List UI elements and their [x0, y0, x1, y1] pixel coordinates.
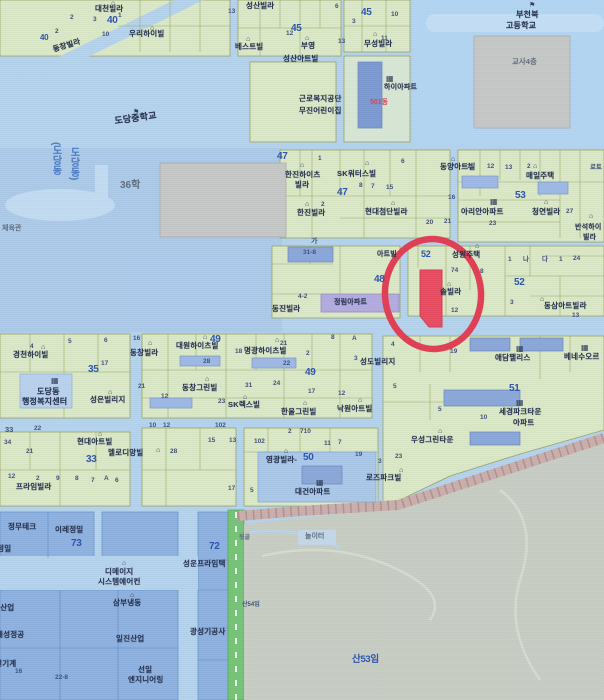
map-label: 우성그린타운: [411, 436, 454, 444]
map-label: 6: [115, 478, 119, 485]
building-icon: ⌂: [284, 448, 288, 455]
map-label: 10: [149, 423, 156, 430]
map-label: 2: [306, 351, 310, 358]
map-label: 성은빌리지: [90, 396, 126, 404]
building-icon: ⌂: [243, 394, 247, 401]
building-icon: ⌂: [122, 560, 126, 567]
map-label: 52: [421, 250, 430, 259]
map-label: 2: [527, 164, 531, 171]
map-label: 2: [36, 476, 40, 483]
map-label: 로토: [590, 165, 602, 172]
map-label: 삼부냉동: [113, 599, 141, 607]
map-label: 경천하이빌: [13, 351, 49, 359]
map-label: 23: [489, 221, 496, 228]
map-label: 영광빌라-: [266, 456, 297, 464]
map-label: 고등학교: [506, 22, 536, 30]
map-label: 현대첨단빌라: [365, 208, 408, 216]
map-label: 정림아파트: [334, 299, 367, 306]
apartment-icon: ▦: [316, 479, 324, 487]
map-label: 프라임빌라: [16, 483, 52, 491]
map-label: 베스트빌: [235, 43, 263, 51]
map-label: 22: [283, 361, 290, 368]
building-icon: ⌂: [300, 162, 304, 169]
map-label: 2: [288, 429, 292, 436]
map-label: 710: [300, 429, 311, 436]
map-label: 근로복지공단: [299, 95, 342, 103]
map-label: 부천북: [516, 11, 539, 19]
map-label: 교사4층: [512, 58, 537, 66]
map-label: 12: [338, 391, 345, 398]
building-icon: ⌂: [205, 376, 209, 383]
map-label: 13: [228, 9, 235, 16]
map-label: 5: [438, 407, 442, 414]
map-label: 빌라: [295, 181, 309, 189]
map-label: 5: [68, 339, 72, 346]
building-icon: ⌂: [358, 397, 362, 404]
school-icon: ⚑: [133, 109, 139, 116]
map-label: 13: [229, 438, 236, 445]
map-label: 21: [444, 219, 451, 226]
map-label: 8: [331, 335, 335, 342]
map-label: 도당동): [68, 147, 78, 180]
map-label: 40: [40, 34, 48, 42]
map-label: 2: [55, 29, 59, 36]
map-label: 반석하이: [575, 224, 602, 231]
map-label: 7: [371, 184, 375, 191]
building-icon: ⌂: [540, 296, 544, 303]
map-label: 체육관: [2, 225, 21, 232]
building-icon: ⌂: [589, 213, 593, 220]
map-label: 1: [559, 257, 563, 264]
map-label: 현대아트빌: [77, 438, 113, 446]
map-label: 한진빌라: [297, 209, 325, 217]
map-label: 21: [138, 384, 145, 391]
map-label: (도당동: [50, 142, 60, 175]
map-label: 33: [86, 455, 97, 465]
map-label: 동창빌라: [130, 349, 158, 357]
map-label: 한진하이츠: [285, 171, 321, 179]
building-icon: ⌂: [156, 447, 160, 454]
map-label: 성운프라임텍: [183, 560, 226, 568]
apartment-icon: ▦: [386, 75, 394, 83]
map-label: 28: [170, 449, 177, 456]
map-label: 16: [448, 195, 455, 202]
map-label: 13: [505, 165, 512, 172]
building-icon: ⌂: [399, 467, 403, 474]
map-label: 4-2: [298, 294, 307, 301]
map-label: A: [352, 336, 357, 343]
map-label: 52: [514, 278, 525, 288]
map-label: 19: [355, 452, 362, 459]
building-icon: ⌂: [373, 31, 377, 38]
map-label: SK렉스빌: [228, 401, 260, 409]
map-label: 24: [273, 381, 280, 388]
building-icon: ⌂: [98, 431, 102, 438]
map-label: 매일주택: [526, 172, 554, 180]
map-label: 19: [450, 349, 457, 356]
map-label: 하이아파트: [384, 84, 417, 91]
map-label: 빌라: [583, 234, 596, 241]
building-icon: ⌂: [303, 400, 307, 407]
map-label: 501동: [370, 99, 388, 106]
map-label: 다: [542, 257, 548, 264]
map-label: 11: [467, 164, 474, 171]
map-label: 광성기공사: [190, 628, 226, 636]
map-label: 3: [354, 356, 358, 363]
map-label: 성산빌라: [246, 2, 274, 10]
map-label: 나: [523, 257, 529, 264]
map-label: 23: [395, 454, 402, 461]
map-label: 시스템에어컨: [98, 578, 141, 586]
map-label: 4: [391, 342, 395, 349]
building-icon: ⌂: [108, 389, 112, 396]
map-label: 무성빌라: [364, 40, 392, 48]
map-label: 17: [308, 389, 315, 396]
map-label: 3: [352, 19, 356, 26]
map-label: 정무테크: [8, 523, 36, 531]
map-label: 24: [573, 256, 580, 263]
map-label: 동진빌라: [272, 305, 300, 313]
map-label: 디메이지: [105, 568, 133, 576]
map-label: 8: [75, 476, 79, 483]
building-icon: ⌂: [544, 199, 548, 206]
map-label: 4: [30, 344, 34, 351]
map-label: 3: [510, 300, 514, 307]
building-icon: ⌂: [305, 201, 309, 208]
map-label: 가: [311, 238, 317, 245]
map-label: 102: [215, 423, 226, 430]
map-label: 동창그린빌: [182, 384, 218, 392]
map-label: A: [104, 476, 109, 483]
map-label: 아리안아파트: [461, 208, 504, 216]
map-label: 이레정밀: [55, 526, 83, 534]
map-label: 성도빌리지: [360, 358, 396, 366]
map-label: 애담팰리스: [495, 354, 531, 362]
map-label: 낙원아트빌: [337, 405, 373, 413]
apartment-icon: ▦: [581, 344, 589, 352]
map-label: 7: [338, 440, 342, 447]
map-label: 베네수오르: [564, 353, 600, 361]
map-label: 27: [566, 209, 573, 216]
map-label: 22-8: [55, 675, 68, 682]
map-label: 31-8: [303, 250, 316, 257]
map-label: SK워터스빌: [337, 170, 376, 178]
map-label: 2: [70, 15, 74, 22]
map-label: 17: [228, 486, 235, 493]
map-label: 세경파크타운: [499, 408, 542, 416]
map-label: 5: [393, 384, 397, 391]
map-label: 12: [8, 474, 15, 481]
map-label: 동창빌라: [52, 38, 81, 53]
map-label: 동체산업: [0, 604, 14, 612]
map-label: 47: [337, 188, 348, 198]
map-label: 삼선기계: [0, 660, 16, 668]
building-icon: ⌂: [305, 35, 309, 42]
map-labels-layer: 대천빌라40우리하이빌동창빌라성산빌라134545부영성산아트빌베스트빌무성빌라…: [0, 0, 604, 700]
map-label: 산54임: [242, 602, 260, 608]
map-label: 5: [250, 488, 254, 495]
map-label: 48: [374, 275, 385, 285]
map-label: 11: [324, 441, 331, 448]
map-label: 74: [451, 268, 458, 275]
map-label: 멜로디앙빌: [108, 449, 144, 457]
map-label: 명광하이츠빌: [244, 347, 287, 355]
map-label: 솔빌라: [440, 288, 461, 296]
map-label: 놀이터: [305, 533, 324, 540]
map-label: 22: [34, 426, 41, 433]
map-label: 한울그린빌: [281, 408, 317, 416]
school-icon: ⚑: [529, 2, 535, 9]
map-label: 53: [515, 191, 526, 201]
map-label: 일진산업: [116, 635, 144, 643]
map-label: 뒷골: [239, 535, 250, 541]
map-label: 13: [338, 39, 345, 46]
map-label: 청연빌라: [532, 208, 560, 216]
map-label: 16: [133, 336, 140, 343]
apartment-icon: ▦: [516, 399, 524, 407]
map-label: 23: [218, 399, 225, 406]
map-label: 성산아트빌: [283, 55, 319, 63]
map-label: 40: [107, 16, 118, 26]
map-label: 36학: [120, 181, 140, 191]
building-icon: ⌂: [130, 592, 134, 599]
building-icon: ⌂: [365, 160, 369, 167]
map-label: 선일: [138, 666, 152, 674]
map-label: 102: [254, 439, 265, 446]
map-label: 6: [401, 159, 405, 166]
apartment-icon: ▦: [490, 198, 498, 206]
map-label: 12: [163, 423, 170, 430]
map-label: 로즈파크빌: [366, 474, 402, 482]
map-label: 45: [361, 8, 372, 18]
map-label: 21: [280, 341, 287, 348]
map-label: 51: [509, 384, 520, 394]
map-label: 9: [56, 476, 60, 483]
map-label: 33: [5, 426, 13, 434]
building-icon: ⌂: [148, 340, 152, 347]
building-icon: ⌂: [533, 163, 537, 170]
map-label: 해성정공: [0, 631, 24, 639]
building-icon: ⌂: [41, 344, 45, 351]
map-label: 21: [26, 449, 33, 456]
scanned-map: 대천빌라40우리하이빌동창빌라성산빌라134545부영성산아트빌베스트빌무성빌라…: [0, 0, 604, 700]
map-label: 12: [161, 394, 168, 401]
map-label: 72: [209, 542, 220, 552]
apartment-icon: ▦: [516, 345, 524, 353]
map-label: 34: [4, 440, 11, 447]
map-label: 1: [508, 257, 512, 264]
map-label: 73: [71, 539, 82, 549]
map-label: 1: [318, 156, 322, 163]
building-icon: ⌂: [475, 243, 479, 250]
building-icon: ⌂: [275, 337, 279, 344]
map-label: 20: [426, 220, 433, 227]
map-label: 15: [208, 438, 215, 445]
map-label: 2: [321, 202, 325, 209]
map-label: 50: [303, 453, 314, 463]
map-label: 행정복지센터: [22, 398, 67, 406]
map-label: 13: [572, 313, 579, 320]
map-label: 18: [235, 349, 242, 356]
map-label: 동삼아트빌라: [544, 302, 587, 310]
map-label: 6: [335, 4, 339, 11]
building-icon: ⌂: [203, 334, 207, 341]
map-label: 17: [101, 361, 108, 368]
building-icon: ⌂: [246, 36, 250, 43]
building-icon: ⌂: [438, 428, 442, 435]
apartment-icon: ▦: [51, 377, 59, 385]
map-label: 성원주택: [452, 251, 480, 259]
map-label: 12: [451, 308, 458, 315]
map-label: 12: [487, 164, 494, 171]
map-label: 49: [305, 368, 316, 378]
map-label: 도당동: [37, 388, 60, 396]
map-label: 산53임: [352, 655, 379, 665]
building-icon: ⌂: [447, 281, 451, 288]
map-label: 1: [118, 13, 122, 20]
map-label: 무진어린이집: [299, 107, 342, 115]
map-label: 대건아파트: [295, 488, 331, 496]
map-label: 8: [359, 183, 363, 190]
map-label: 3: [378, 459, 382, 466]
map-label: 성정밀: [0, 545, 11, 553]
map-label: 부영: [301, 42, 315, 50]
map-label: 47: [277, 152, 288, 162]
map-label: 엔지니어링: [128, 676, 164, 684]
map-label: 16: [15, 669, 22, 676]
map-label: 35: [88, 365, 99, 375]
map-label: 12: [286, 31, 293, 38]
map-label: 8: [480, 269, 484, 276]
map-label: 49: [210, 335, 221, 345]
map-label: 31: [245, 383, 252, 390]
map-label: 10: [391, 12, 398, 19]
map-label: 아트빌: [377, 251, 397, 258]
map-label: 7: [91, 478, 95, 485]
building-icon: ⌂: [150, 25, 154, 32]
map-label: 10: [102, 32, 109, 39]
map-label: 15: [386, 185, 393, 192]
map-label: 아파트: [513, 419, 534, 427]
building-icon: ⌂: [451, 156, 455, 163]
map-label: 우리하이빌: [129, 30, 165, 38]
map-label: 6: [104, 338, 108, 345]
map-label: 11: [381, 36, 388, 43]
building-icon: ⌂: [111, 0, 115, 7]
map-label: 3: [93, 17, 97, 24]
map-label: 28: [203, 359, 210, 366]
map-label: 10: [480, 415, 487, 422]
building-icon: ⌂: [391, 200, 395, 207]
